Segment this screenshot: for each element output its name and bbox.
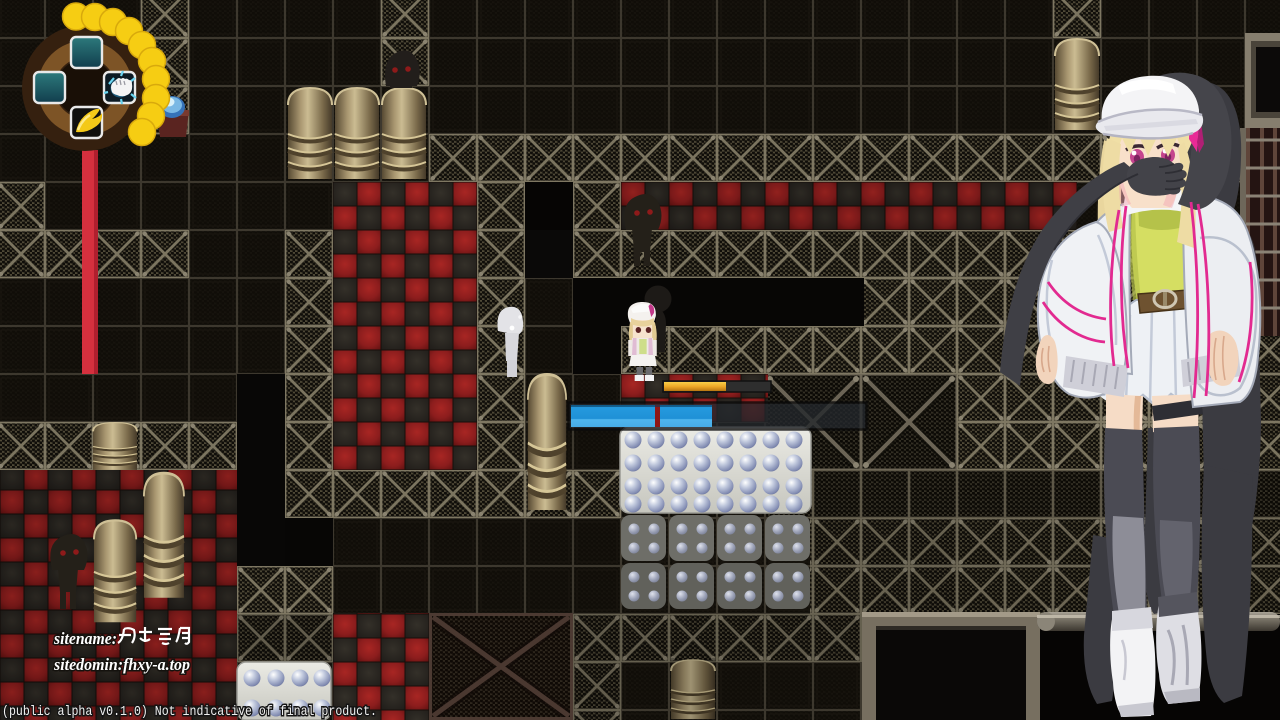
svg-text:sitename:: sitename: bbox=[53, 629, 117, 648]
svg-text:sitedomin:fhxy-a.top: sitedomin:fhxy-a.top bbox=[53, 655, 190, 674]
svg-text:(public alpha v0.1.0) Not indi: (public alpha v0.1.0) Not indicative of … bbox=[2, 704, 377, 720]
